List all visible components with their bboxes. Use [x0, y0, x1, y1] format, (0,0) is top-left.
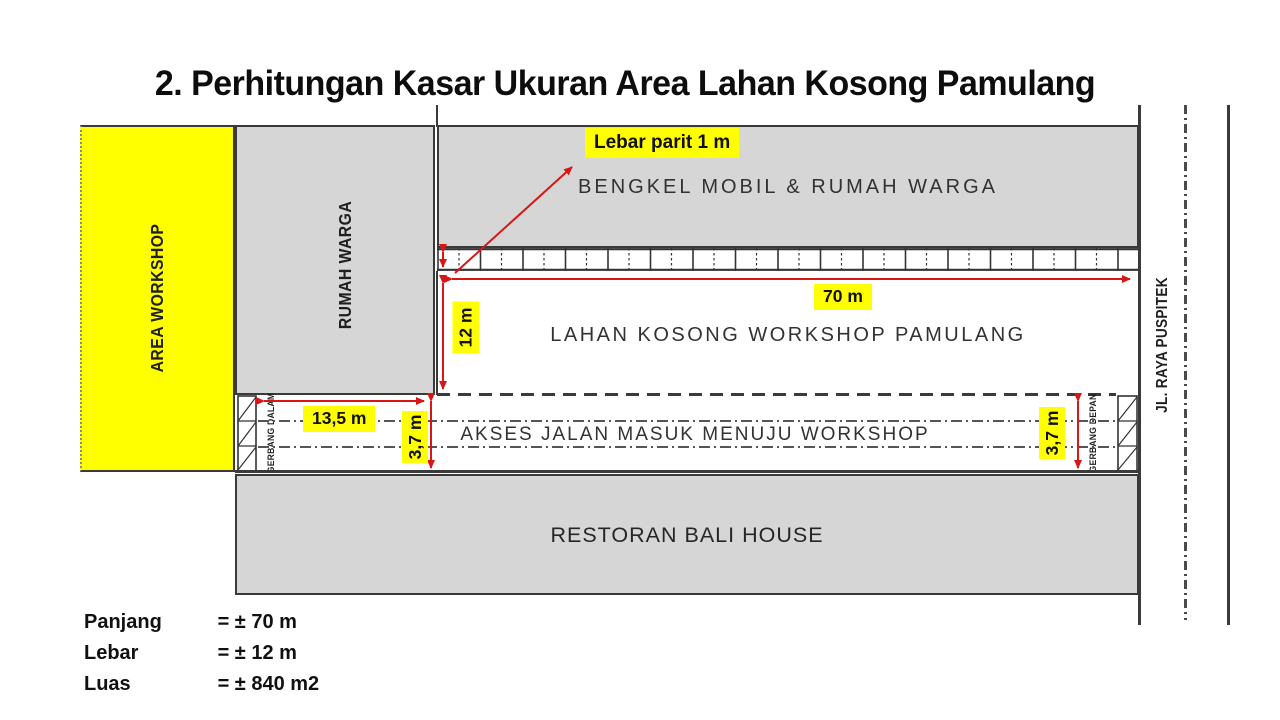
- summary-block: Panjang = ± 70 m Lebar = ± 12 m Luas = ±…: [84, 607, 319, 700]
- dim-12m-label: 12 m: [453, 302, 480, 354]
- road-centerline-upper: [258, 420, 1116, 422]
- zone-area-workshop-label: AREA WORKSHOP: [147, 199, 167, 397]
- parit-strip: [437, 248, 1139, 271]
- summary-label: Lebar: [84, 638, 212, 669]
- summary-label: Luas: [84, 669, 212, 700]
- site-right-edge-line: [1138, 105, 1141, 625]
- summary-row-luas: Luas = ± 840 m2: [84, 669, 319, 700]
- zone-akses-jalan-label: AKSES JALAN MASUK MENUJU WORKSHOP: [437, 424, 953, 446]
- gate-hatch-icon: [237, 395, 257, 472]
- gate-hatch-icon: [1117, 395, 1138, 472]
- road-median-dashdot-line: [1184, 105, 1187, 620]
- dim-3-7m-right-label: 3,7 m: [1039, 407, 1065, 459]
- zone-restoran-label: RESTORAN BALI HOUSE: [235, 523, 1139, 548]
- summary-row-panjang: Panjang = ± 70 m: [84, 607, 319, 638]
- road-centerline-lower: [258, 446, 1116, 448]
- summary-label: Panjang: [84, 607, 212, 638]
- zone-bengkel-label: BENGKEL MOBIL & RUMAH WARGA: [437, 176, 1139, 199]
- road-bottom-edge: [235, 470, 1139, 473]
- summary-value: = ± 12 m: [218, 642, 297, 664]
- boundary-line-top-left: [436, 105, 438, 127]
- jalan-raya-label: JL. RAYA PUSPITEK: [1154, 257, 1172, 433]
- road-far-edge-line: [1227, 105, 1230, 625]
- dim-lebar-parit-label: Lebar parit 1 m: [585, 128, 739, 158]
- summary-row-lebar: Lebar = ± 12 m: [84, 638, 319, 669]
- lahan-road-dashed-boundary: [437, 393, 1116, 396]
- dim-13-5m-label: 13,5 m: [303, 406, 375, 432]
- gerbang-depan-strip: [1117, 395, 1138, 472]
- dim-70m-label: 70 m: [814, 284, 872, 310]
- summary-value: = ± 840 m2: [218, 673, 320, 695]
- summary-value: = ± 70 m: [218, 611, 297, 633]
- zone-rumah-warga-label: RUMAH WARGA: [335, 175, 355, 355]
- page-title: 2. Perhitungan Kasar Ukuran Area Lahan K…: [19, 64, 1232, 104]
- gerbang-dalam-strip: [237, 395, 257, 472]
- dim-3-7m-left-label: 3,7 m: [402, 411, 428, 463]
- zone-lahan-kosong-label: LAHAN KOSONG WORKSHOP PAMULANG: [437, 324, 1139, 347]
- parit-hatch-pattern: [437, 248, 1139, 271]
